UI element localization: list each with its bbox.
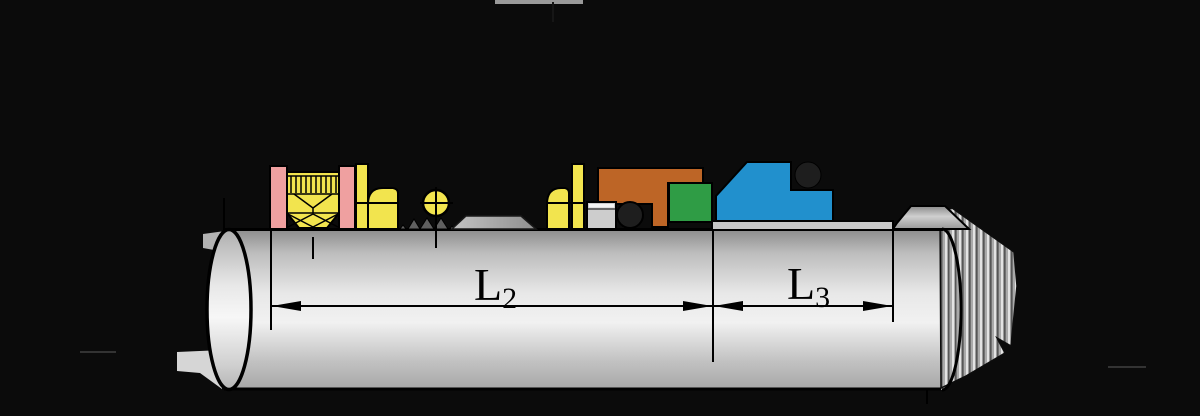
left-artifact-line [80,351,116,353]
gland-ring-right [339,166,355,229]
top-artifact-line [552,2,554,22]
right-artifact-line [1108,366,1146,368]
bellows-dome-2 [547,188,569,229]
dim-label-L2-subscript: 2 [502,282,517,315]
drive-collar [452,216,536,229]
o-ring-2 [795,162,821,188]
dim-label-L3-base: L [787,258,815,309]
gland-ring-left [270,166,287,229]
bellows-dome-1 [368,188,398,229]
shaft-end-ellipse [207,230,251,390]
bellows-post-2 [572,164,584,229]
top-edge-artifact [495,0,583,4]
stationary-seat [669,183,712,222]
bellows-post-1 [356,164,368,229]
shaft-sleeve-step [712,221,893,230]
dim-label-L2-base: L [474,259,502,310]
shaft-body [228,229,961,390]
seal-face-highlight [589,204,614,208]
diagram-canvas: L2 L3 [0,0,1200,416]
o-ring-1 [617,202,643,228]
seal-diagram: L2 L3 [0,0,1200,416]
upper-extension-line [223,198,225,230]
dim-label-L3-subscript: 3 [815,281,830,314]
